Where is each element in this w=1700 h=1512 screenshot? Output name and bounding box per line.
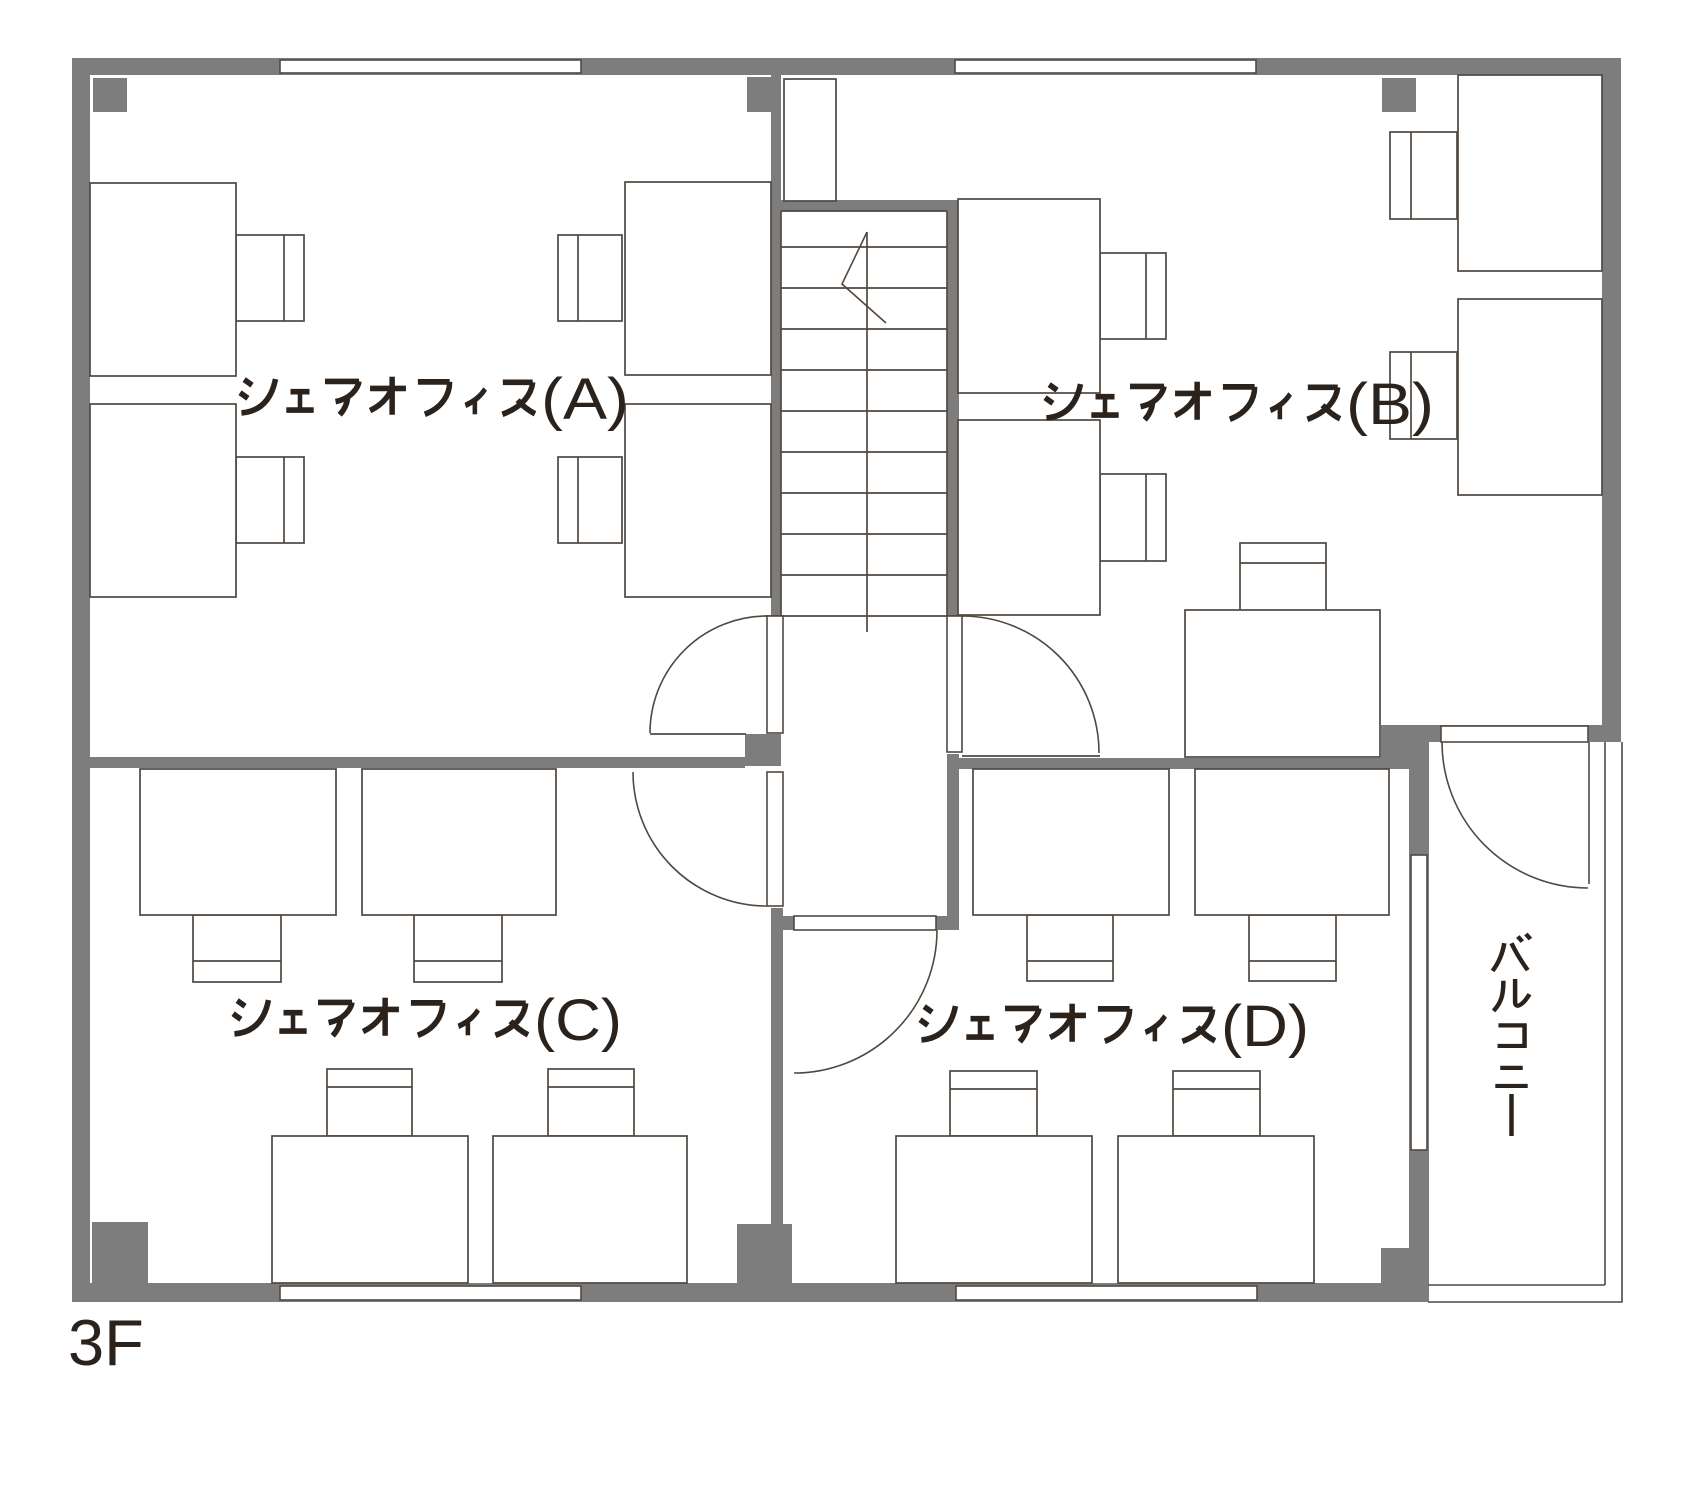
svg-text:(B): (B) bbox=[1346, 372, 1434, 437]
svg-text:(D): (D) bbox=[1221, 994, 1309, 1059]
svg-text:(A): (A) bbox=[541, 367, 629, 432]
svg-text:3F: 3F bbox=[68, 1306, 144, 1379]
svg-text:(C): (C) bbox=[534, 988, 622, 1053]
